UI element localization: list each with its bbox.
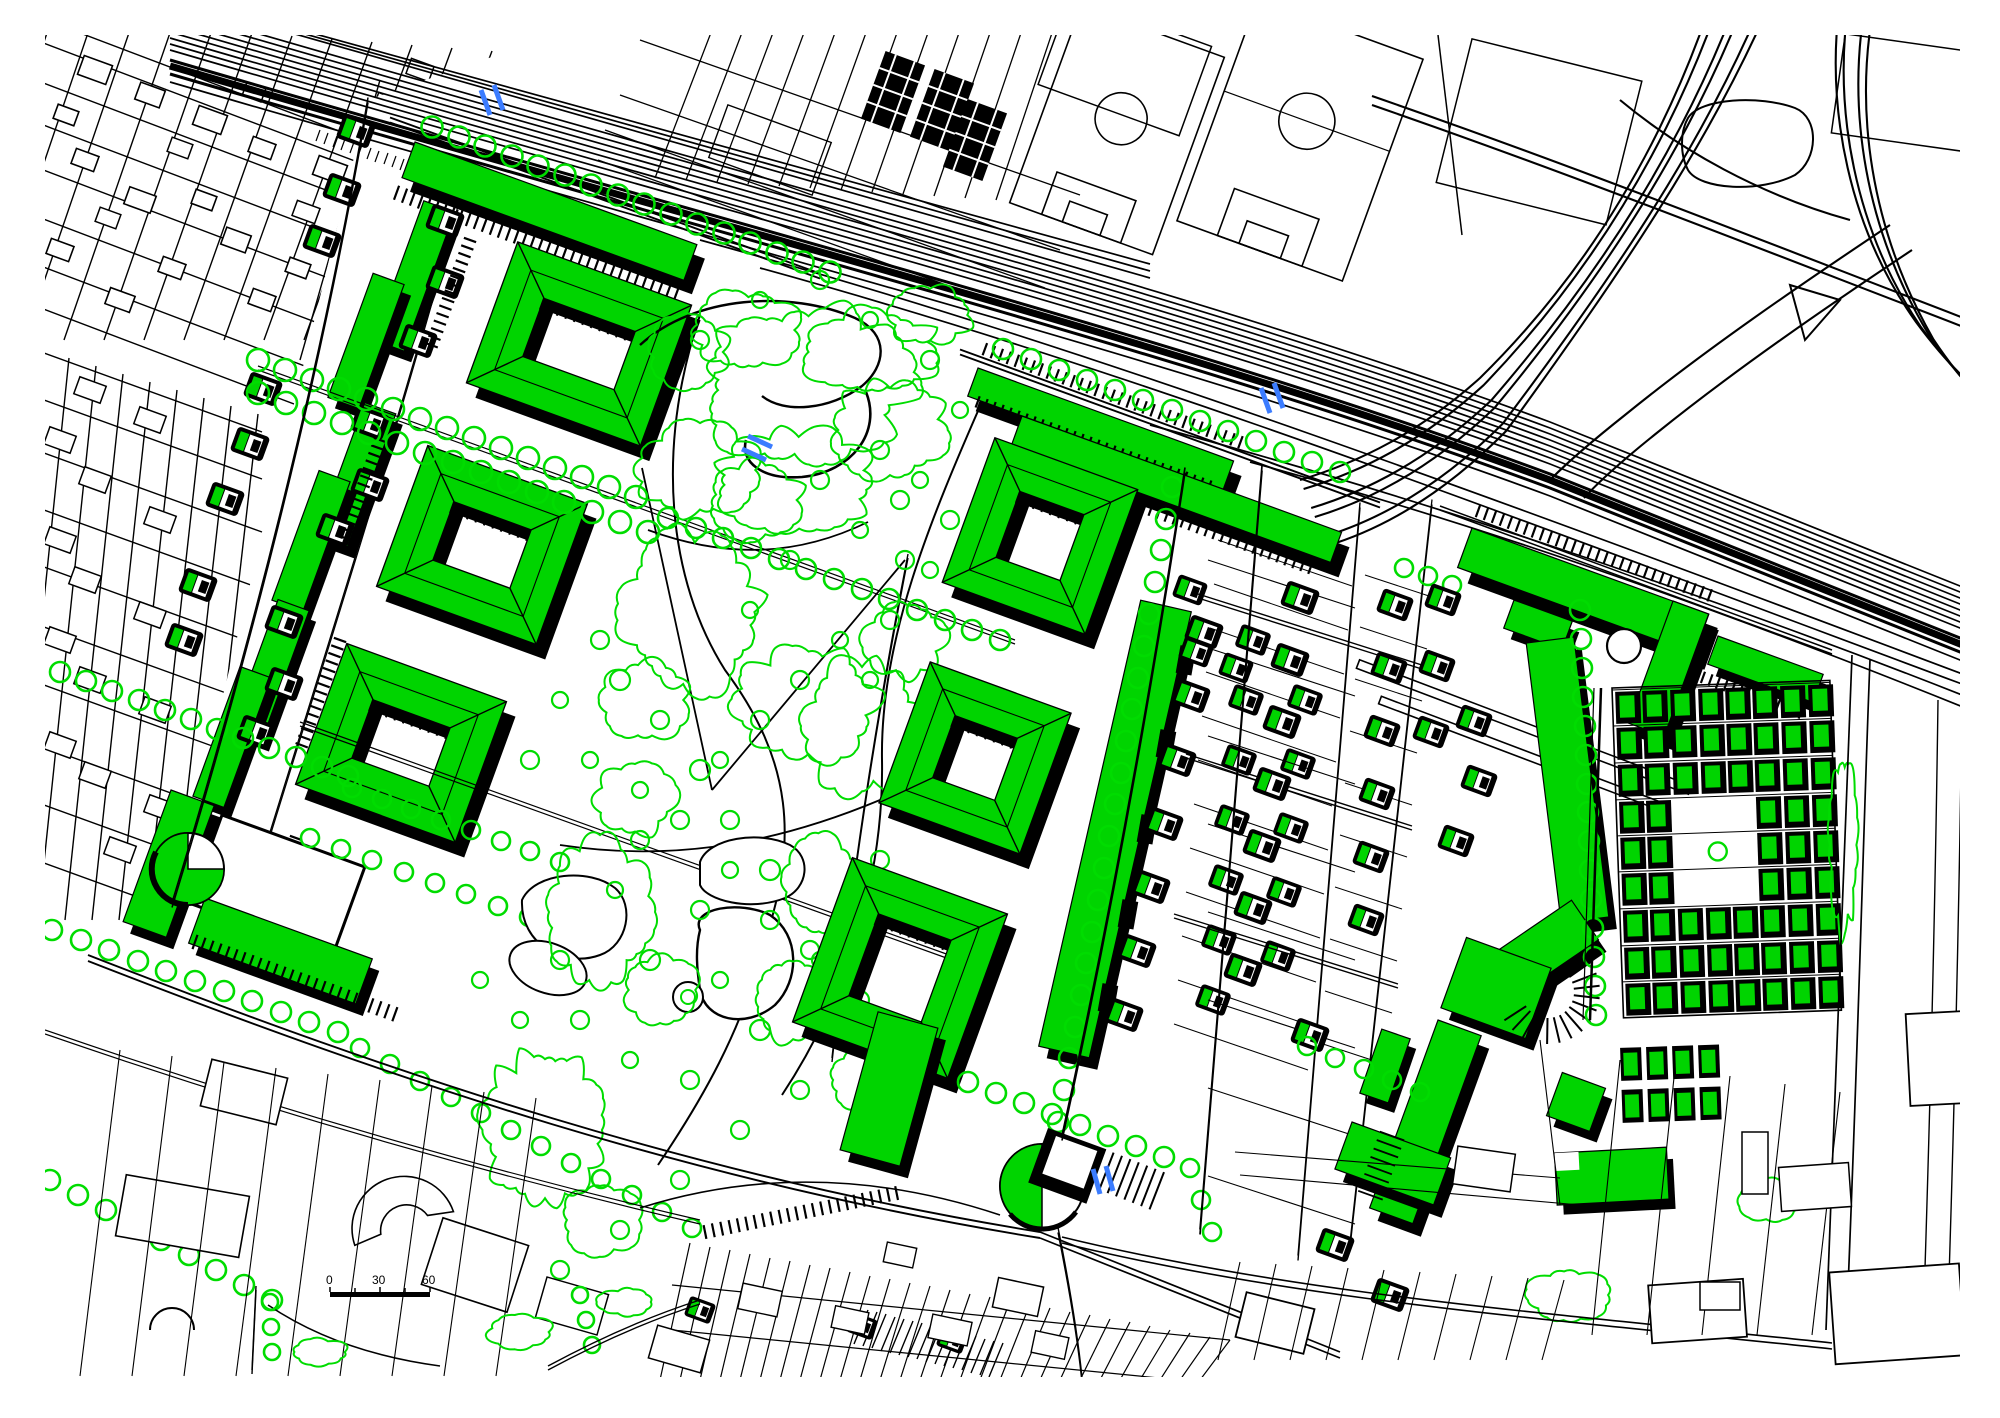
svg-text:60: 60 bbox=[422, 1273, 436, 1287]
svg-text:0: 0 bbox=[326, 1273, 333, 1287]
svg-text:30: 30 bbox=[372, 1273, 386, 1287]
